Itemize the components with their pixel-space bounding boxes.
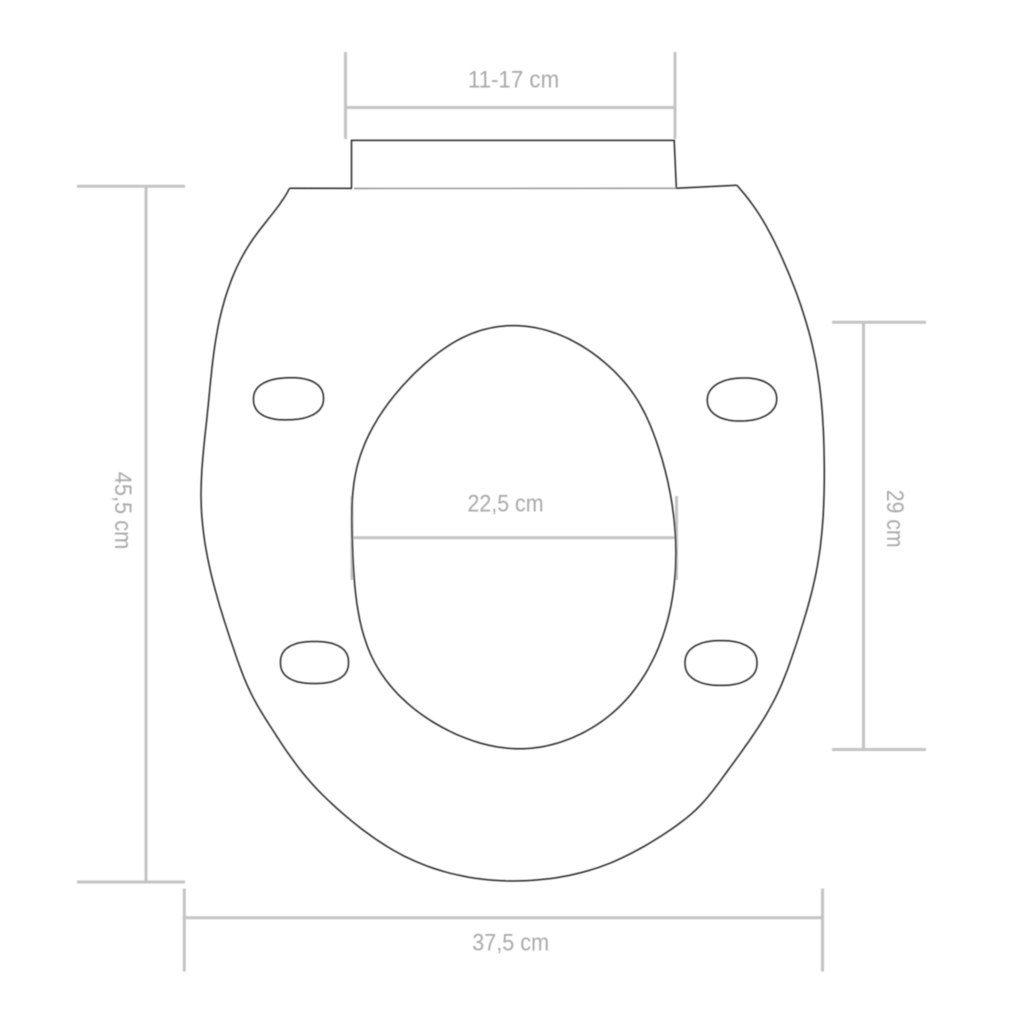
svg-text:22,5 cm: 22,5 cm [468,491,544,517]
svg-text:45,5 cm: 45,5 cm [110,472,137,550]
svg-text:29 cm: 29 cm [881,490,907,548]
svg-text:37,5 cm: 37,5 cm [472,930,549,956]
svg-text:11-17 cm: 11-17 cm [468,66,559,93]
